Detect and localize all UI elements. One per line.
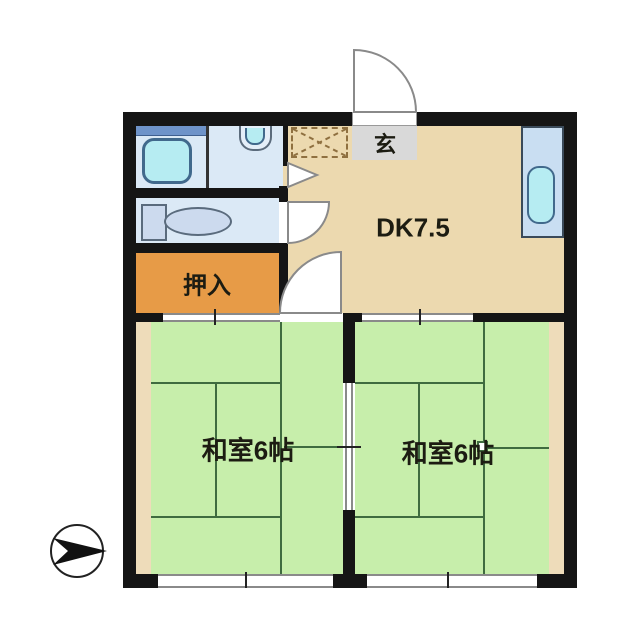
divider-wall-left-stub [123, 313, 163, 322]
closet-sliding-door [163, 313, 280, 322]
dk-label: DK7.5 [376, 213, 450, 244]
shoe-cabinet-x-lines [293, 129, 346, 156]
wall-top [123, 112, 577, 126]
washitsu-right-edge-strip [549, 322, 564, 574]
divider-wall-mid [343, 313, 362, 322]
vanity-sink-bowl-icon [245, 128, 265, 145]
window-right-room [367, 574, 537, 588]
wall-stub-corridor [279, 186, 288, 202]
washroom-right-wall [283, 126, 288, 166]
tatami-line [151, 516, 281, 518]
partition-wall-bottom [343, 510, 355, 574]
partition-wall-top [343, 322, 355, 383]
bath-shelf [136, 126, 206, 136]
washitsu-left-edge-strip [136, 322, 151, 574]
north-arrow-icon [48, 522, 110, 582]
window-right-tick [447, 572, 449, 588]
washitsu-right-label: 和室6帖 [402, 434, 494, 471]
bathtub-icon [142, 138, 192, 184]
closet-sliding-door-tick [214, 309, 216, 325]
closet-label: 押入 [183, 266, 231, 301]
wall-under-bathroom [123, 188, 288, 198]
shoe-cabinet-dashed-x-icon [291, 127, 348, 158]
toilet-doorway [279, 202, 288, 243]
washitsu-left-doorway [280, 313, 343, 322]
tatami-line [355, 516, 484, 518]
entrance-door-arc [354, 50, 416, 112]
wall-right [564, 112, 577, 588]
washitsu-left-label: 和室6帖 [202, 431, 294, 468]
toilet-bowl-icon [164, 207, 232, 236]
entrance-threshold [352, 112, 417, 126]
wall-under-toilet [123, 243, 288, 253]
window-left-tick [245, 572, 247, 588]
genkan-label: 玄 [374, 127, 396, 159]
dk-sliding-door-tick [419, 309, 421, 325]
divider-wall-right [473, 313, 564, 322]
wall-left [123, 112, 136, 588]
dk-washitsu-sliding-door [362, 313, 473, 322]
closet-right-wall [279, 243, 288, 313]
kitchen-sink-icon [527, 166, 555, 224]
fusuma-tick [337, 446, 361, 448]
floor-plan: 玄 DK7.5 押入 和室6帖 和室6帖 [0, 0, 621, 640]
